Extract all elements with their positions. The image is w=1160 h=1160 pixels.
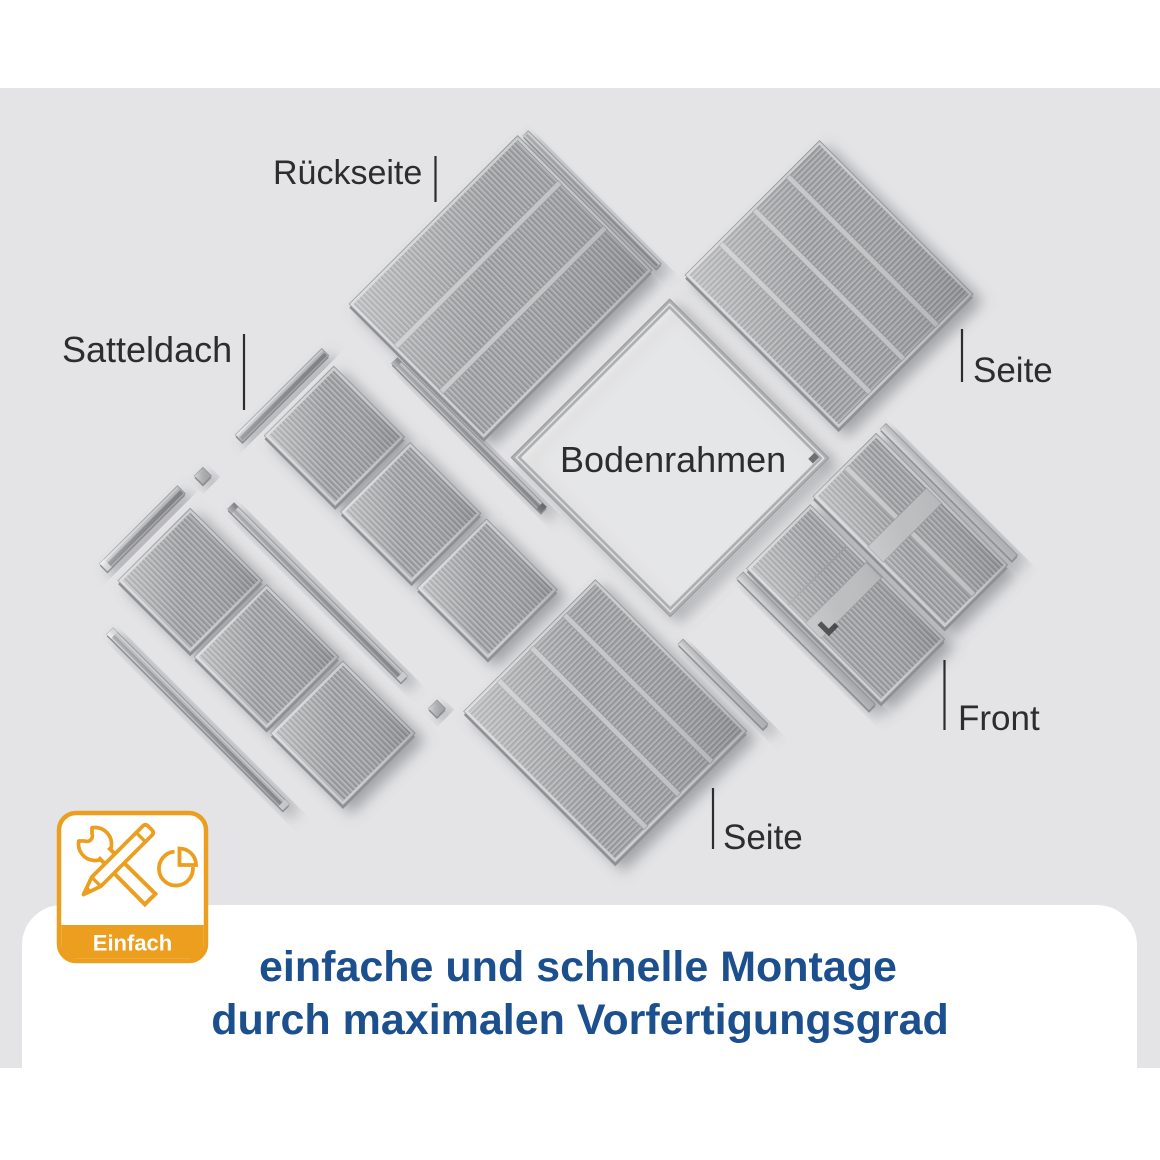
svg-text:Satteldach: Satteldach — [62, 329, 232, 370]
svg-text:Front: Front — [958, 699, 1040, 738]
svg-text:Rückseite: Rückseite — [273, 154, 422, 192]
svg-text:einfache und schnelle Montage: einfache und schnelle Montage — [259, 943, 897, 991]
svg-text:Seite: Seite — [973, 351, 1053, 390]
svg-text:Bodenrahmen: Bodenrahmen — [560, 439, 786, 480]
svg-text:durch maximalen Vorfertigungsg: durch maximalen Vorfertigungsgrad — [211, 996, 949, 1044]
svg-text:Einfach: Einfach — [93, 931, 172, 956]
svg-text:Seite: Seite — [723, 818, 803, 857]
